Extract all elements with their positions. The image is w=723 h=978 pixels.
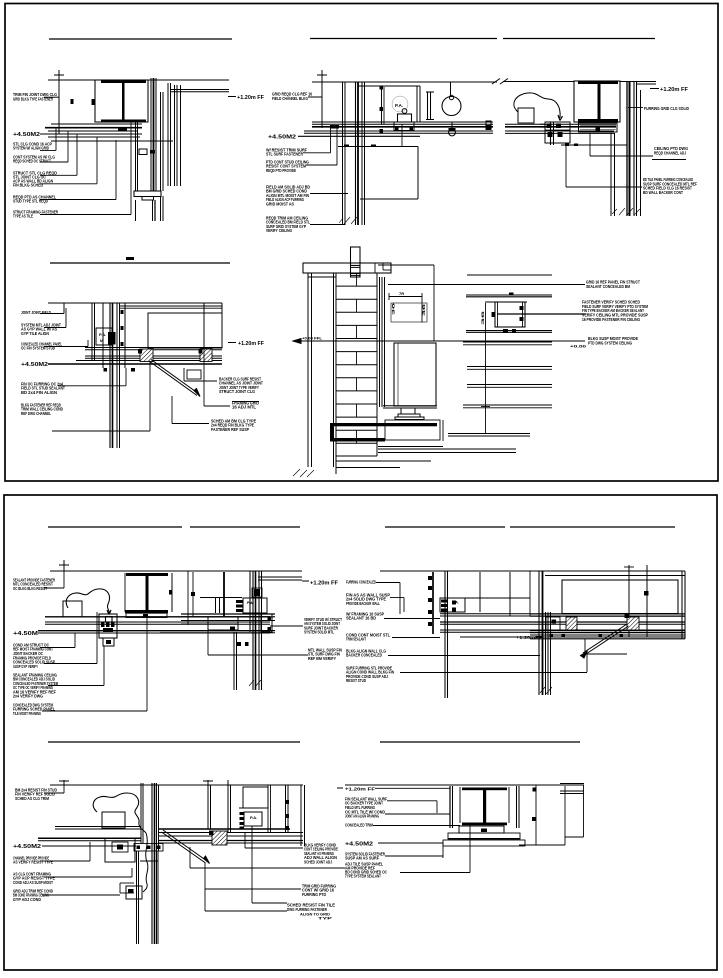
svg-text:VERIFY CEILING: VERIFY CEILING bbox=[266, 228, 292, 233]
svg-text:SCHED AS CLG TRIM: SCHED AS CLG TRIM bbox=[15, 796, 49, 801]
svg-text:+4.50M2: +4.50M2 bbox=[13, 844, 41, 850]
svg-text:FIELD CHANNEL BLKG: FIELD CHANNEL BLKG bbox=[272, 96, 308, 101]
svg-text:P.A.: P.A. bbox=[247, 601, 254, 605]
svg-text:P.A.: P.A. bbox=[250, 815, 257, 820]
svg-text:SUSP GYP VERIFY: SUSP GYP VERIFY bbox=[13, 664, 38, 669]
svg-text:TILE MOIST FRAMING: TILE MOIST FRAMING bbox=[13, 711, 41, 716]
svg-text:PROVIDE BACKER WALL: PROVIDE BACKER WALL bbox=[346, 601, 380, 606]
svg-text:7R: 7R bbox=[399, 291, 404, 296]
svg-text:REQD SCHED OC STRUCT: REQD SCHED OC STRUCT bbox=[13, 159, 51, 164]
svg-text:SYSTEM SOLID MTL: SYSTEM SOLID MTL bbox=[304, 630, 334, 635]
svg-text:+1.20m FF: +1.20m FF bbox=[345, 787, 375, 792]
svg-text:SEALANT 16 BD: SEALANT 16 BD bbox=[346, 616, 376, 621]
svg-text:TRIM SEALANT: TRIM SEALANT bbox=[346, 637, 366, 642]
svg-text:FASTENER REF SUSP: FASTENER REF SUSP bbox=[211, 427, 249, 432]
svg-text:16 ADJ MTL: 16 ADJ MTL bbox=[232, 405, 256, 410]
svg-text:P.A.: P.A. bbox=[99, 332, 106, 337]
svg-text:SYSTEM W/ ALIGN GRID: SYSTEM W/ ALIGN GRID bbox=[13, 146, 49, 151]
svg-text:+0.00 FFL: +0.00 FFL bbox=[302, 336, 323, 341]
svg-text:BACKER CONCEALED: BACKER CONCEALED bbox=[346, 653, 382, 658]
svg-text:PTD DWG SYSTEM CEILING: PTD DWG SYSTEM CEILING bbox=[588, 340, 632, 345]
svg-text:GRID MOIST AS: GRID MOIST AS bbox=[266, 201, 294, 206]
svg-text:GYP ADJ COND: GYP ADJ COND bbox=[13, 897, 41, 902]
svg-text:SUSP AM AS SURF: SUSP AM AS SURF bbox=[345, 856, 379, 861]
svg-text:RESIST STUD: RESIST STUD bbox=[346, 678, 366, 683]
svg-text:+1.20m FF: +1.20m FF bbox=[310, 581, 338, 587]
svg-text:SEALANT CONCEALED BM: SEALANT CONCEALED BM bbox=[586, 284, 630, 289]
svg-text:TYPE SYSTEM SEALANT: TYPE SYSTEM SEALANT bbox=[345, 874, 381, 879]
svg-text:FURRING PTD: FURRING PTD bbox=[302, 892, 326, 897]
svg-text:+4.50M2: +4.50M2 bbox=[13, 132, 40, 138]
svg-text:REQD CHANNEL ADJ: REQD CHANNEL ADJ bbox=[654, 150, 686, 155]
svg-text:36: 36 bbox=[481, 311, 485, 325]
svg-text:BD WALL BACKER CONT: BD WALL BACKER CONT bbox=[643, 190, 683, 195]
svg-text:SCHED JOINT ADJ: SCHED JOINT ADJ bbox=[304, 859, 332, 864]
svg-text:FIN BLKG SCHED: FIN BLKG SCHED bbox=[13, 183, 43, 188]
svg-text:AS VERIFY RESIST TYPE: AS VERIFY RESIST TYPE bbox=[13, 860, 53, 865]
svg-text:COND ADJ AS SUSP MOIST: COND ADJ AS SUSP MOIST bbox=[13, 880, 53, 885]
svg-text:REQD PTD PROVIDE: REQD PTD PROVIDE bbox=[266, 168, 296, 173]
svg-text:+0.00: +0.00 bbox=[570, 344, 587, 349]
svg-text:STL SURF FASTENER: STL SURF FASTENER bbox=[266, 152, 304, 157]
svg-text:REF BM VERIFY: REF BM VERIFY bbox=[308, 656, 336, 661]
svg-text:36: 36 bbox=[422, 304, 426, 316]
svg-text:+4.50M2: +4.50M2 bbox=[345, 842, 373, 848]
svg-text:+4.50M2: +4.50M2 bbox=[268, 135, 296, 141]
svg-text:JOINT JOINT FIELD: JOINT JOINT FIELD bbox=[21, 310, 51, 315]
svg-text:+1.20m FF: +1.20m FF bbox=[660, 87, 688, 93]
svg-text:+1.20m FF: +1.20m FF bbox=[237, 95, 264, 101]
svg-text:P.A.: P.A. bbox=[395, 103, 403, 108]
svg-text:2x4 VERIFY DWG: 2x4 VERIFY DWG bbox=[13, 694, 43, 699]
svg-text:TYPE AS TILE: TYPE AS TILE bbox=[13, 214, 33, 219]
svg-text:16 PROVIDE FASTENER FIN CEILIN: 16 PROVIDE FASTENER FIN CEILING bbox=[582, 317, 640, 322]
svg-text:OC BLKG BLKG RESIST: OC BLKG BLKG RESIST bbox=[13, 586, 47, 591]
svg-text:FURRING GRID CLG SOLID: FURRING GRID CLG SOLID bbox=[644, 106, 689, 111]
svg-text:BD 2x4 FIN ALIGN: BD 2x4 FIN ALIGN bbox=[21, 390, 57, 395]
svg-text:DWG FURRING FASTENER: DWG FURRING FASTENER bbox=[287, 907, 328, 912]
svg-text:FURRING CONCEALED: FURRING CONCEALED bbox=[346, 580, 376, 585]
svg-text:JOINT AM ALIGN FRAMING: JOINT AM ALIGN FRAMING bbox=[345, 814, 379, 819]
svg-text:CONCEALED TRIM: CONCEALED TRIM bbox=[345, 823, 373, 828]
svg-text:STRUCT JOINT CLG: STRUCT JOINT CLG bbox=[219, 389, 255, 394]
svg-text:GYP TILE ALIGN: GYP TILE ALIGN bbox=[21, 331, 49, 336]
svg-text:+4.50M: +4.50M bbox=[13, 631, 38, 637]
svg-text:36: 36 bbox=[392, 303, 396, 315]
svg-text:+4.50M2: +4.50M2 bbox=[21, 362, 48, 368]
svg-text:TYP: TYP bbox=[318, 917, 333, 921]
svg-text:+1.20m FF: +1.20m FF bbox=[238, 341, 264, 347]
svg-text:REF DWG CHANNEL: REF DWG CHANNEL bbox=[21, 411, 51, 416]
